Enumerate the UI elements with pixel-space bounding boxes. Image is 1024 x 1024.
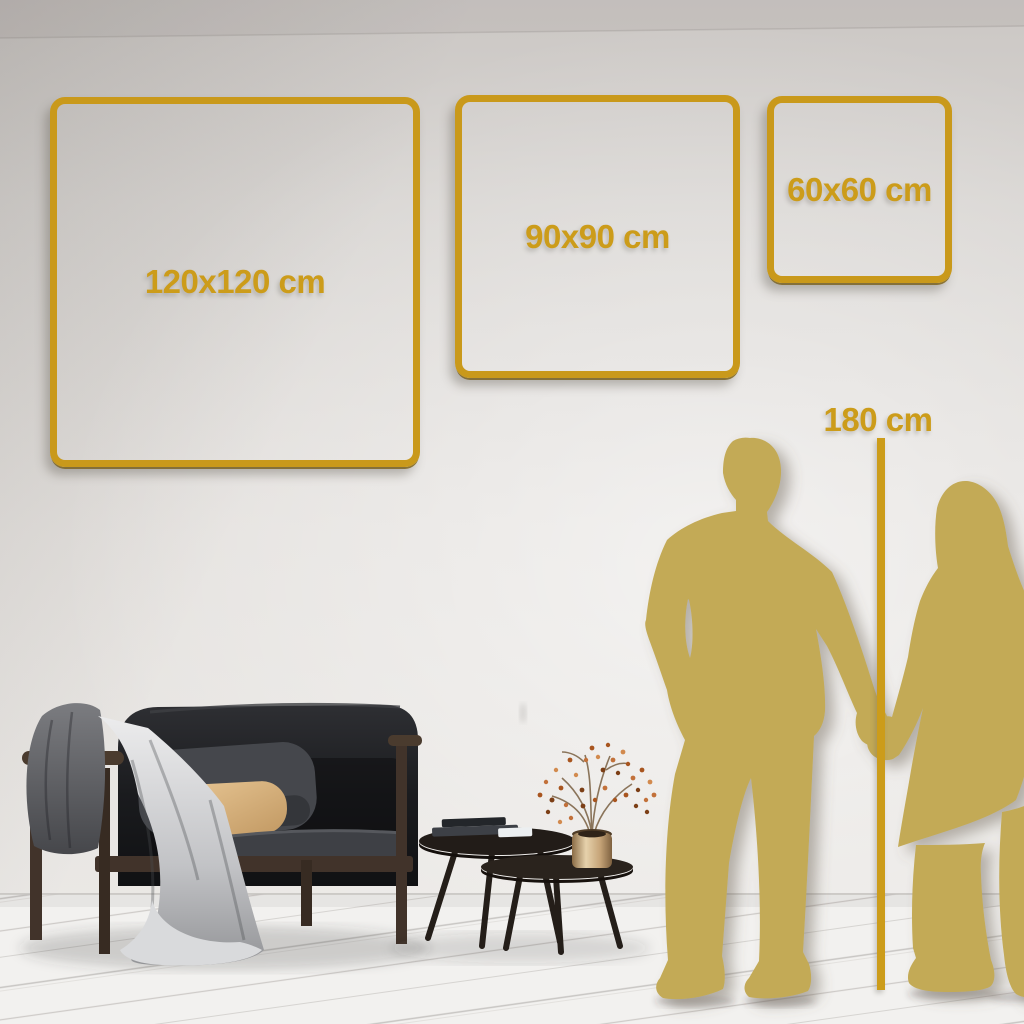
height-ruler-label: 180 cm (818, 401, 938, 439)
height-ruler-line (877, 438, 885, 990)
size-label-120cm: 120x120 cm (145, 263, 325, 301)
size-frame-120cm: 120x120 cm (50, 97, 420, 467)
size-guide-scene: 120x120 cm 90x90 cm 60x60 cm (0, 0, 1024, 1024)
size-frame-90cm: 90x90 cm (455, 95, 740, 378)
size-frame-60cm: 60x60 cm (767, 96, 952, 283)
size-label-60cm: 60x60 cm (787, 171, 932, 209)
size-label-90cm: 90x90 cm (525, 218, 670, 256)
